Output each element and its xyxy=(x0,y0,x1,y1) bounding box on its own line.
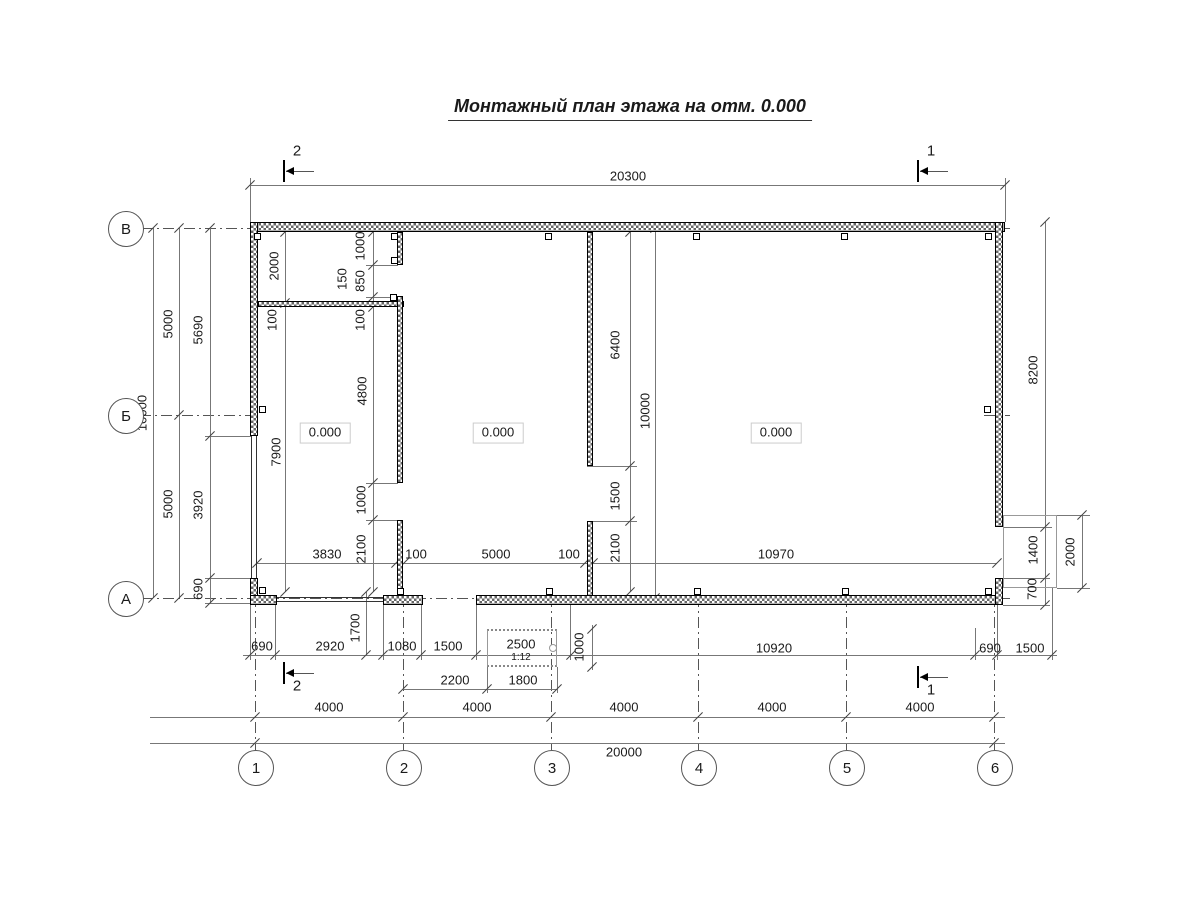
elevation-mark: 0.000 xyxy=(751,423,802,444)
dimension-line xyxy=(210,228,211,603)
window-line xyxy=(256,436,257,578)
dim-label: 10000 xyxy=(639,393,652,429)
grid-bubble-row: В xyxy=(108,211,144,247)
grid-bubble-col: 6 xyxy=(977,750,1013,786)
column-marker xyxy=(259,406,266,413)
dimension-line xyxy=(592,625,593,670)
dim-label: 4000 xyxy=(758,701,787,714)
column-marker xyxy=(984,406,991,413)
dim-label: 5000 xyxy=(482,548,511,561)
dim-label: 150 xyxy=(336,268,349,290)
dim-label: 5000 xyxy=(162,490,175,519)
column-marker xyxy=(259,587,266,594)
column-marker xyxy=(693,233,700,240)
dim-label: 1000 xyxy=(355,486,368,515)
wall-segment xyxy=(995,578,1003,605)
section-label: 2 xyxy=(293,143,301,160)
dim-label: 20000 xyxy=(606,746,642,759)
dimension-line xyxy=(250,185,1005,186)
dim-label: 700 xyxy=(1026,578,1039,600)
dim-label: 10970 xyxy=(758,548,794,561)
column-marker xyxy=(391,257,398,264)
wall-segment xyxy=(587,232,593,466)
grid-bubble-col: 2 xyxy=(386,750,422,786)
axis-line xyxy=(846,596,847,750)
dim-label: 2200 xyxy=(441,674,470,687)
section-bar xyxy=(283,662,285,684)
dim-label: 4000 xyxy=(610,701,639,714)
dim-label: 3830 xyxy=(313,548,342,561)
wall-segment xyxy=(250,595,277,605)
grid-bubble-row: А xyxy=(108,581,144,617)
drawing-title: Монтажный план этажа на отм. 0.000 xyxy=(448,96,812,121)
column-marker xyxy=(842,588,849,595)
column-marker xyxy=(985,588,992,595)
dimension-line xyxy=(205,436,252,437)
section-bar xyxy=(917,666,919,688)
column-marker xyxy=(390,294,397,301)
dimension-line xyxy=(373,232,374,592)
dimension-line xyxy=(1052,588,1053,660)
column-marker xyxy=(391,233,398,240)
section-bar xyxy=(917,160,919,182)
wall-segment xyxy=(397,296,403,483)
section-arrow-icon xyxy=(286,167,294,175)
column-marker xyxy=(254,233,261,240)
dim-label: 20300 xyxy=(610,170,646,183)
section-label: 1 xyxy=(927,143,935,160)
dim-label: 1500 xyxy=(1016,642,1045,655)
dimension-line xyxy=(153,228,154,598)
wall-segment xyxy=(587,521,593,598)
grid-bubble-col: 5 xyxy=(829,750,865,786)
dim-label: 100 xyxy=(354,309,367,331)
dim-label: 690 xyxy=(251,640,273,653)
dim-label: 690 xyxy=(979,642,1001,655)
dim-label: 1000 xyxy=(354,232,367,261)
column-marker xyxy=(985,233,992,240)
window-line xyxy=(251,436,252,578)
dim-label: 2100 xyxy=(355,535,368,564)
axis-line xyxy=(403,596,404,750)
section-label: 1 xyxy=(927,682,935,699)
wall-segment xyxy=(250,222,258,436)
ramp-slope-label: 1:12 xyxy=(511,653,530,663)
dimension-line xyxy=(150,743,1005,744)
wall-segment xyxy=(995,222,1003,527)
dim-label: 8200 xyxy=(1027,356,1040,385)
dim-label: 1800 xyxy=(509,674,538,687)
dimension-line xyxy=(205,603,252,604)
dim-label: 10920 xyxy=(756,642,792,655)
dim-label: 2000 xyxy=(1064,538,1077,567)
dim-label: 1700 xyxy=(349,614,362,643)
dimension-line xyxy=(655,228,656,598)
column-marker xyxy=(841,233,848,240)
wall-segment xyxy=(383,595,423,605)
dim-label: 100 xyxy=(266,309,279,331)
ramp-width-label: 2500 xyxy=(507,638,536,651)
dim-label: 1500 xyxy=(609,482,622,511)
axis-line xyxy=(698,596,699,750)
dim-label: 1000 xyxy=(573,633,586,662)
axis-line xyxy=(994,596,995,750)
axis-line xyxy=(551,596,552,750)
dim-label: 1400 xyxy=(1027,536,1040,565)
dim-label: 2920 xyxy=(316,640,345,653)
dim-label: 3920 xyxy=(192,491,205,520)
dim-label: 1080 xyxy=(388,640,417,653)
dim-label: 7900 xyxy=(270,438,283,467)
column-marker xyxy=(397,588,404,595)
elevation-mark: 0.000 xyxy=(300,423,351,444)
section-arrow-icon xyxy=(920,673,928,681)
dim-label: 100 xyxy=(558,548,580,561)
dim-label: 4000 xyxy=(315,701,344,714)
grid-bubble-col: 3 xyxy=(534,750,570,786)
dimension-line xyxy=(285,232,286,592)
section-label: 2 xyxy=(293,678,301,695)
dim-label: 4000 xyxy=(463,701,492,714)
dim-label: 6400 xyxy=(609,331,622,360)
dimension-line xyxy=(150,717,1005,718)
floor-plan-canvas: Монтажный план этажа на отм. 0.000 20300… xyxy=(0,0,1200,900)
column-marker xyxy=(545,233,552,240)
dimension-line xyxy=(403,689,557,690)
elevation-mark: 0.000 xyxy=(473,423,524,444)
ramp-dot xyxy=(549,644,557,652)
axis-line xyxy=(255,596,256,750)
dim-label: 2100 xyxy=(609,534,622,563)
dim-label: 100 xyxy=(405,548,427,561)
wall-segment xyxy=(397,520,403,598)
dim-label: 2000 xyxy=(268,252,281,281)
wall-segment xyxy=(258,301,404,307)
dimension-line xyxy=(1057,588,1090,589)
dim-label: 4800 xyxy=(356,377,369,406)
dimension-line xyxy=(630,232,631,592)
dim-label: 5000 xyxy=(162,310,175,339)
dimension-line xyxy=(205,578,252,579)
dim-label: 1500 xyxy=(434,640,463,653)
section-bar xyxy=(283,160,285,182)
wall-segment xyxy=(476,595,1003,605)
window-line xyxy=(277,597,383,598)
dim-label: 690 xyxy=(192,578,205,600)
column-marker xyxy=(546,588,553,595)
grid-bubble-col: 4 xyxy=(681,750,717,786)
axis-line xyxy=(140,415,258,416)
grid-bubble-col: 1 xyxy=(238,750,274,786)
window-line xyxy=(277,601,383,602)
dim-label: 4000 xyxy=(906,701,935,714)
section-arrow-icon xyxy=(286,669,294,677)
dim-label: 850 xyxy=(354,270,367,292)
dim-label: 5690 xyxy=(192,316,205,345)
section-arrow-icon xyxy=(920,167,928,175)
wall-segment xyxy=(250,222,1005,232)
dimension-line xyxy=(1082,515,1083,588)
column-marker xyxy=(694,588,701,595)
grid-bubble-row: Б xyxy=(108,398,144,434)
